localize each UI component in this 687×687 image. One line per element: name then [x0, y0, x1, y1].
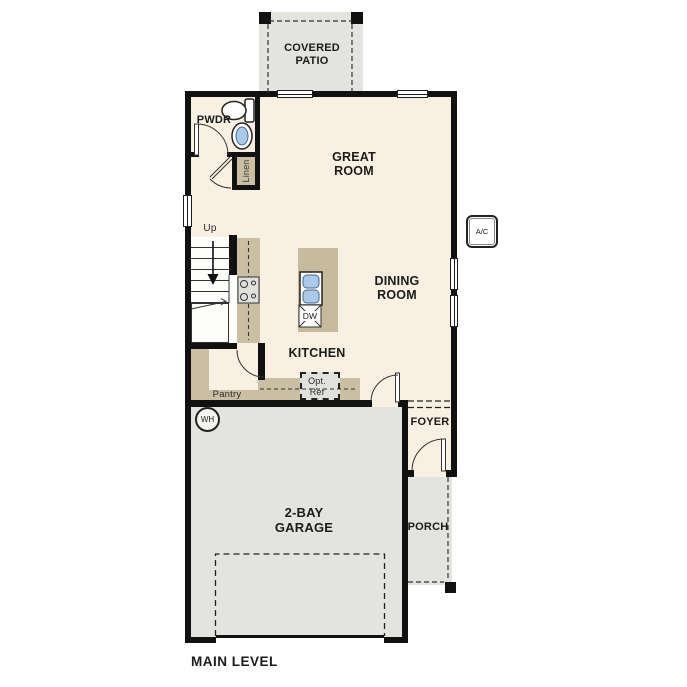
- plan-title: MAIN LEVEL: [191, 654, 278, 669]
- floor-plan: WH A/C COVEREDPATIO PWDR Linen Up GREATR…: [0, 0, 687, 687]
- understair-closet: [192, 304, 229, 343]
- pwdr-sink-bowl: [236, 127, 248, 145]
- pantry-label: Pantry: [213, 389, 242, 400]
- pwdr-door-leaf: [195, 124, 199, 155]
- island-sink-basin-bottom: [303, 290, 319, 303]
- linework-layer: [0, 0, 687, 687]
- opt-ref-label: Opt.Ref: [308, 376, 326, 397]
- ac-unit-label: A/C: [476, 227, 489, 236]
- island-sink-basin-top: [303, 275, 319, 288]
- great-room-label: GREATROOM: [332, 150, 376, 178]
- covered-patio-label: COVEREDPATIO: [284, 42, 340, 68]
- hall-door-arc: [210, 179, 231, 188]
- dining-room-label: DININGROOM: [375, 274, 420, 302]
- garage-entry-door-leaf: [396, 373, 400, 402]
- dishwasher-label: DW: [302, 311, 319, 321]
- foyer-archway-dashed: [408, 401, 450, 408]
- kitchen-label: KITCHEN: [289, 346, 346, 360]
- garage-entry-door-arc: [371, 375, 398, 402]
- porch-label: PORCH: [408, 521, 449, 533]
- pantry-door-arc: [237, 350, 264, 377]
- pwdr-door-arc: [197, 124, 228, 155]
- pwdr-label: PWDR: [197, 114, 231, 126]
- front-door-arc: [412, 439, 444, 471]
- stair-up-arrowhead: [208, 274, 219, 285]
- water-heater: WH: [195, 407, 220, 432]
- ac-unit: A/C: [466, 215, 498, 248]
- linen-label: Linen: [241, 159, 251, 182]
- foyer-label: FOYER: [411, 416, 450, 428]
- garage-label: 2-BAYGARAGE: [275, 506, 333, 535]
- garage-clearance-dashed: [216, 554, 385, 636]
- front-door-leaf: [442, 439, 446, 471]
- up-label: Up: [203, 223, 216, 234]
- hall-door-leaf: [210, 157, 232, 179]
- water-heater-label: WH: [201, 415, 214, 424]
